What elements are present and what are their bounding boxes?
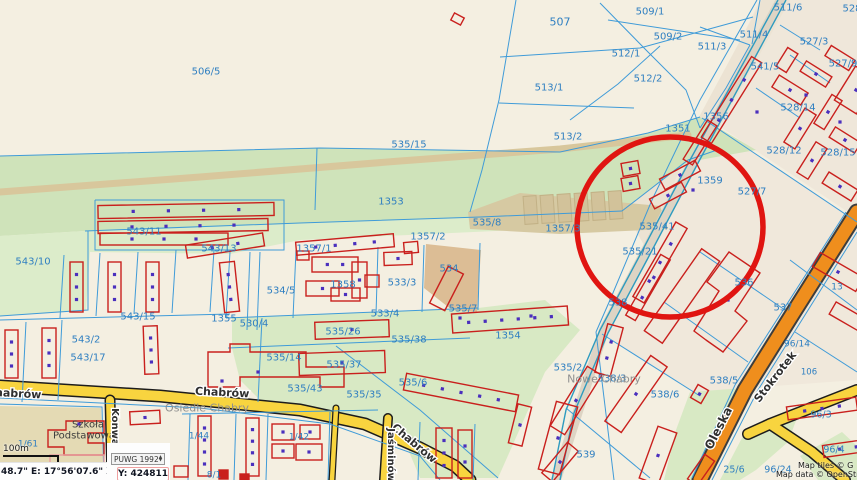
address-point bbox=[350, 328, 353, 331]
address-point bbox=[373, 240, 376, 243]
address-point bbox=[151, 285, 154, 288]
address-point bbox=[629, 167, 633, 171]
address-point bbox=[314, 245, 317, 248]
address-point bbox=[162, 237, 165, 240]
address-point bbox=[203, 450, 206, 453]
address-point bbox=[550, 315, 553, 318]
address-point bbox=[194, 237, 197, 240]
address-point bbox=[237, 208, 240, 211]
address-point bbox=[458, 316, 461, 319]
address-point bbox=[226, 273, 230, 277]
address-point bbox=[75, 273, 78, 276]
address-point bbox=[496, 398, 500, 402]
address-point bbox=[281, 430, 284, 433]
address-point bbox=[113, 298, 116, 301]
address-point bbox=[478, 394, 482, 398]
garden-plot bbox=[523, 196, 538, 225]
address-point bbox=[151, 298, 154, 301]
address-point bbox=[130, 237, 133, 240]
spinner-icon[interactable]: ▲ ▼ bbox=[159, 456, 162, 462]
address-point bbox=[113, 273, 116, 276]
address-point bbox=[10, 340, 13, 343]
address-point bbox=[251, 440, 254, 443]
address-point bbox=[75, 285, 78, 288]
address-point bbox=[442, 451, 445, 454]
building-outline bbox=[219, 470, 228, 479]
address-point bbox=[130, 225, 133, 228]
address-point bbox=[838, 120, 841, 123]
scale-bar: 100m bbox=[3, 444, 59, 457]
crs-select-value: PUWG 1992 bbox=[114, 455, 159, 464]
address-point bbox=[440, 387, 444, 391]
address-point bbox=[47, 339, 50, 342]
address-point bbox=[210, 246, 214, 250]
map-canvas[interactable]: 506/5507509/1509/2511/3511/4511/6512/151… bbox=[0, 0, 857, 480]
address-point bbox=[10, 352, 13, 355]
y-coordinate-field[interactable]: Y: 424811 bbox=[117, 467, 169, 480]
address-point bbox=[629, 182, 633, 186]
crs-panel: PUWG 1992 ▲ ▼ Y: 424811 bbox=[107, 443, 170, 480]
address-point bbox=[500, 318, 503, 321]
address-point bbox=[463, 460, 466, 463]
garden-plot bbox=[557, 194, 572, 223]
address-point bbox=[308, 430, 311, 433]
address-point bbox=[803, 409, 807, 413]
address-point bbox=[422, 383, 426, 387]
address-point bbox=[755, 110, 758, 113]
address-point bbox=[529, 314, 532, 317]
crs-select[interactable]: PUWG 1992 ▲ ▼ bbox=[111, 453, 165, 465]
address-point bbox=[838, 447, 842, 451]
spinner-down-icon[interactable]: ▼ bbox=[159, 459, 162, 462]
address-point bbox=[281, 449, 284, 452]
address-point bbox=[459, 391, 463, 395]
building bbox=[240, 474, 249, 480]
attribution-tiles: Map tiles © G bbox=[798, 461, 857, 470]
address-point bbox=[149, 336, 152, 339]
address-point bbox=[228, 285, 232, 289]
address-point bbox=[838, 404, 842, 408]
address-point bbox=[463, 444, 466, 447]
address-point bbox=[251, 428, 254, 431]
address-point bbox=[353, 242, 356, 245]
scale-bar-line bbox=[3, 455, 59, 457]
address-point bbox=[150, 360, 153, 363]
address-point bbox=[202, 209, 205, 212]
scale-label: 100m bbox=[3, 444, 59, 454]
address-point bbox=[75, 298, 78, 301]
address-point bbox=[517, 317, 520, 320]
address-point bbox=[321, 287, 324, 290]
address-point bbox=[251, 463, 254, 466]
address-point bbox=[236, 242, 240, 246]
road-jasminow bbox=[384, 418, 388, 480]
attribution: Map tiles © G Map data © OpenStreetMap bbox=[776, 461, 857, 480]
address-point bbox=[344, 293, 347, 296]
address-point bbox=[151, 273, 154, 276]
address-point bbox=[358, 278, 361, 281]
address-point bbox=[149, 348, 152, 351]
address-point bbox=[256, 370, 259, 373]
address-point bbox=[77, 422, 80, 425]
attribution-osm-link[interactable]: Map data © OpenStreetMap bbox=[776, 470, 857, 479]
building bbox=[219, 470, 228, 479]
address-point bbox=[334, 244, 337, 247]
address-point bbox=[229, 298, 233, 302]
address-point bbox=[220, 379, 223, 382]
address-point bbox=[232, 223, 235, 226]
garden-plot bbox=[591, 192, 606, 221]
y-coordinate-value: Y: 424811 bbox=[118, 469, 168, 479]
address-point bbox=[691, 188, 694, 191]
address-point bbox=[203, 438, 206, 441]
address-point bbox=[132, 210, 135, 213]
address-point bbox=[483, 320, 486, 323]
address-point bbox=[164, 225, 167, 228]
address-point bbox=[113, 285, 116, 288]
address-point bbox=[203, 426, 206, 429]
address-point bbox=[804, 93, 807, 96]
building-outline bbox=[240, 474, 249, 480]
address-point bbox=[442, 464, 445, 467]
address-point bbox=[167, 209, 170, 212]
address-point bbox=[326, 263, 329, 266]
address-point bbox=[341, 263, 344, 266]
garden-plot bbox=[608, 191, 623, 220]
address-point bbox=[47, 351, 50, 354]
address-point bbox=[820, 407, 824, 411]
address-point bbox=[143, 416, 146, 419]
address-point bbox=[251, 451, 254, 454]
address-point bbox=[47, 364, 50, 367]
map-application: 506/5507509/1509/2511/3511/4511/6512/151… bbox=[0, 0, 857, 480]
address-point bbox=[340, 361, 343, 364]
address-point bbox=[442, 439, 445, 442]
address-point bbox=[533, 316, 536, 319]
address-point bbox=[10, 364, 13, 367]
address-point bbox=[307, 450, 310, 453]
address-point bbox=[467, 321, 470, 324]
address-point bbox=[198, 224, 201, 227]
garden-plot bbox=[540, 195, 555, 224]
address-point bbox=[203, 462, 206, 465]
address-point bbox=[396, 257, 399, 260]
